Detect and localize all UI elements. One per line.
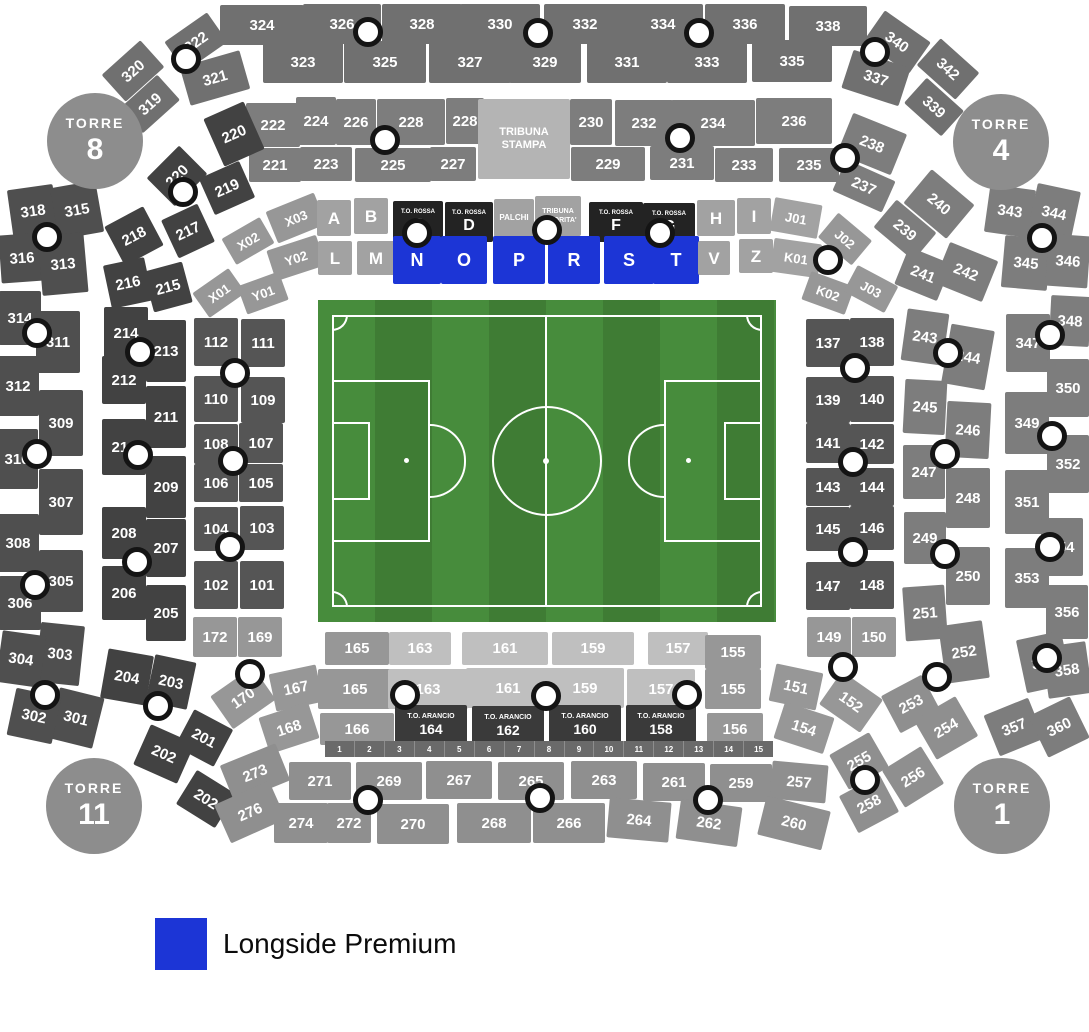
section-155[interactable]: 155 bbox=[705, 669, 761, 709]
section-163[interactable]: 163 bbox=[389, 632, 451, 665]
section-label: 112 bbox=[204, 335, 228, 350]
section-356[interactable]: 356 bbox=[1046, 585, 1088, 639]
section-label: 338 bbox=[815, 19, 840, 34]
section-label: 165 bbox=[342, 682, 367, 697]
section-label: I bbox=[752, 208, 757, 225]
section-329[interactable]: 329 bbox=[509, 41, 581, 83]
section-label: Y01 bbox=[250, 283, 276, 303]
section-257[interactable]: 257 bbox=[769, 761, 828, 804]
section-label: 331 bbox=[614, 55, 639, 70]
gate-marker bbox=[645, 218, 675, 248]
gate-marker bbox=[532, 215, 562, 245]
gate-marker bbox=[20, 570, 50, 600]
section-label: 159 bbox=[580, 641, 605, 656]
section-325[interactable]: 325 bbox=[344, 41, 426, 83]
section-label: R bbox=[568, 251, 581, 269]
section-225[interactable]: 225 bbox=[355, 148, 431, 182]
tower-number: 11 bbox=[78, 798, 110, 832]
row-number: 5 bbox=[444, 741, 474, 757]
section-224[interactable]: 224 bbox=[296, 97, 336, 145]
section-label: 103 bbox=[249, 521, 274, 536]
section-335[interactable]: 335 bbox=[752, 40, 832, 82]
section-label: 246 bbox=[955, 422, 981, 438]
gate-marker bbox=[693, 785, 723, 815]
section-s[interactable]: S bbox=[604, 236, 654, 284]
section-205[interactable]: 205 bbox=[146, 585, 186, 641]
section-label: 217 bbox=[173, 219, 202, 243]
section-label: 321 bbox=[201, 67, 229, 88]
section-260[interactable]: 260 bbox=[757, 796, 831, 851]
section-label: 155 bbox=[720, 682, 745, 697]
row-number: 8 bbox=[534, 741, 564, 757]
section-label: 144 bbox=[859, 480, 884, 495]
section-label: 220 bbox=[220, 122, 249, 146]
section-m[interactable]: M bbox=[357, 241, 395, 275]
section-150[interactable]: 150 bbox=[852, 617, 896, 657]
section-label: X02 bbox=[235, 230, 262, 253]
section-label: 208 bbox=[111, 526, 136, 541]
section-label: 109 bbox=[250, 393, 275, 408]
section-label: 216 bbox=[114, 273, 142, 293]
section-label: 320 bbox=[119, 57, 148, 85]
section-label: 227 bbox=[440, 157, 465, 172]
section-label: 327 bbox=[457, 55, 482, 70]
section-101[interactable]: 101 bbox=[240, 561, 284, 609]
gate-marker bbox=[32, 222, 62, 252]
section-label: 164 bbox=[419, 722, 442, 736]
section-label: 261 bbox=[661, 775, 686, 790]
section-157[interactable]: 157 bbox=[648, 632, 708, 665]
row-number: 10 bbox=[593, 741, 623, 757]
section-label: 313 bbox=[50, 255, 76, 272]
section-label: 161 bbox=[492, 641, 517, 656]
row-number: 7 bbox=[504, 741, 534, 757]
section-label: 307 bbox=[48, 495, 73, 510]
section-p[interactable]: P bbox=[493, 236, 545, 284]
row-number: 4 bbox=[414, 741, 444, 757]
pitch-goal-area-right bbox=[724, 422, 762, 500]
section-label: 312 bbox=[5, 379, 30, 394]
section-336[interactable]: 336 bbox=[705, 4, 785, 44]
section-label: 360 bbox=[1044, 715, 1073, 739]
section-label: 215 bbox=[154, 277, 182, 298]
section-label: 151 bbox=[782, 677, 810, 697]
section-label: 266 bbox=[556, 816, 581, 831]
tower-11: TORRE11 bbox=[46, 758, 142, 854]
section-248[interactable]: 248 bbox=[946, 468, 990, 528]
section-230[interactable]: 230 bbox=[570, 99, 612, 145]
section-label: 260 bbox=[780, 813, 808, 834]
section-label: 254 bbox=[931, 715, 960, 741]
section-label: 239 bbox=[891, 216, 920, 244]
section-label: STAMPA bbox=[502, 140, 547, 151]
section-label: O bbox=[457, 251, 471, 269]
section-263[interactable]: 263 bbox=[571, 761, 637, 799]
section-label: 149 bbox=[816, 630, 841, 645]
section-x01[interactable]: X01 bbox=[192, 268, 245, 318]
section-label: 167 bbox=[282, 678, 310, 698]
row-number: 3 bbox=[384, 741, 414, 757]
tower-8: TORRE8 bbox=[47, 93, 143, 189]
section-h[interactable]: H bbox=[697, 200, 735, 236]
section-label: D bbox=[463, 218, 475, 234]
section-label: 145 bbox=[815, 522, 840, 537]
section-308[interactable]: 308 bbox=[0, 514, 39, 572]
section-label: 159 bbox=[572, 681, 597, 696]
row-number: 9 bbox=[564, 741, 594, 757]
section-161[interactable]: 161 bbox=[462, 632, 548, 665]
section-a[interactable]: A bbox=[317, 200, 351, 236]
section-162[interactable]: T.O. ARANCIO162 bbox=[472, 706, 544, 744]
section-331[interactable]: 331 bbox=[587, 41, 667, 83]
section-b[interactable]: B bbox=[354, 198, 388, 234]
section-label: K02 bbox=[815, 283, 842, 303]
section-211[interactable]: 211 bbox=[146, 386, 186, 448]
gate-marker bbox=[860, 37, 890, 67]
section-360[interactable]: 360 bbox=[1028, 696, 1089, 758]
section-label: 161 bbox=[495, 681, 520, 696]
section-label: 106 bbox=[203, 476, 228, 491]
section-165[interactable]: 165 bbox=[318, 669, 392, 709]
section-label: 141 bbox=[815, 436, 840, 451]
row-number: 6 bbox=[474, 741, 504, 757]
section-label: 203 bbox=[157, 672, 185, 692]
section-154[interactable]: 154 bbox=[773, 702, 834, 754]
section-label: J03 bbox=[858, 278, 883, 300]
section-label: 157 bbox=[648, 682, 673, 697]
section-sub-label: T.O. ROSSA bbox=[401, 209, 435, 215]
gate-marker bbox=[30, 680, 60, 710]
pitch-penalty-spot-left bbox=[404, 458, 409, 463]
section-sub-label: TRIBUNA bbox=[499, 127, 549, 138]
section-v[interactable]: V bbox=[698, 241, 730, 275]
tower-1: TORRE1 bbox=[954, 758, 1050, 854]
section-label: 325 bbox=[372, 55, 397, 70]
section-sub-label: T.O. ARANCIO bbox=[637, 713, 684, 720]
tower-label: TORRE bbox=[66, 115, 125, 131]
section-label: 169 bbox=[247, 630, 272, 645]
section-148[interactable]: 148 bbox=[850, 561, 894, 609]
section-z[interactable]: Z bbox=[739, 239, 773, 273]
gate-marker bbox=[22, 318, 52, 348]
section-327[interactable]: 327 bbox=[429, 41, 511, 83]
section-105[interactable]: 105 bbox=[239, 464, 283, 502]
tower-number: 8 bbox=[87, 133, 104, 167]
section-label: 160 bbox=[573, 722, 596, 736]
row-number: 14 bbox=[713, 741, 743, 757]
section-label: 357 bbox=[1000, 715, 1029, 738]
section-label: 166 bbox=[344, 722, 369, 737]
section-215[interactable]: 215 bbox=[143, 262, 193, 313]
section-y01[interactable]: Y01 bbox=[237, 271, 289, 314]
section-label: 252 bbox=[951, 643, 978, 661]
section-label: 102 bbox=[203, 578, 228, 593]
section-label: 162 bbox=[496, 723, 519, 737]
section-label: 202 bbox=[150, 742, 179, 766]
section-label: 235 bbox=[796, 158, 821, 173]
section-label: P bbox=[513, 251, 525, 269]
section-209[interactable]: 209 bbox=[146, 456, 186, 518]
section-label: 101 bbox=[249, 578, 274, 593]
section-label: 250 bbox=[955, 569, 980, 584]
section-label: 323 bbox=[290, 55, 315, 70]
section-label: 352 bbox=[1055, 457, 1080, 472]
section-label: 259 bbox=[728, 776, 753, 791]
section-label: 111 bbox=[251, 336, 274, 351]
section-sub-label: T.O. ARANCIO bbox=[407, 713, 454, 720]
gate-marker bbox=[838, 537, 868, 567]
section-172[interactable]: 172 bbox=[193, 617, 237, 657]
section-103[interactable]: 103 bbox=[240, 506, 284, 550]
section-label: 165 bbox=[344, 641, 369, 656]
section-155[interactable]: 155 bbox=[705, 635, 761, 669]
section-label: 304 bbox=[8, 650, 35, 668]
gate-marker bbox=[171, 44, 201, 74]
section-label: H bbox=[710, 210, 722, 227]
section-stampa[interactable]: TRIBUNASTAMPA bbox=[478, 99, 570, 179]
section-312[interactable]: 312 bbox=[0, 356, 39, 416]
gate-marker bbox=[672, 680, 702, 710]
section-label: 346 bbox=[1055, 253, 1081, 270]
section-label: 147 bbox=[815, 579, 840, 594]
gate-marker bbox=[828, 652, 858, 682]
section-label: 243 bbox=[912, 328, 939, 346]
section-268[interactable]: 268 bbox=[457, 803, 531, 843]
section-label: A bbox=[328, 210, 340, 227]
section-149[interactable]: 149 bbox=[807, 617, 851, 657]
section-label: 309 bbox=[48, 416, 73, 431]
section-304[interactable]: 304 bbox=[0, 630, 46, 688]
section-label: 221 bbox=[262, 158, 287, 173]
section-label: 256 bbox=[898, 764, 927, 790]
section-label: 337 bbox=[862, 67, 890, 89]
section-label: 315 bbox=[63, 200, 90, 219]
section-164[interactable]: T.O. ARANCIO164 bbox=[395, 705, 467, 743]
gate-marker bbox=[930, 539, 960, 569]
section-label: 137 bbox=[815, 336, 840, 351]
section-271[interactable]: 271 bbox=[289, 762, 351, 800]
section-label: 105 bbox=[248, 476, 273, 491]
section-o[interactable]: O bbox=[441, 236, 487, 284]
stadium-seat-map: 3223243263283303323343363383403203213233… bbox=[0, 0, 1089, 1032]
section-label: 258 bbox=[854, 792, 883, 817]
section-label: F bbox=[611, 218, 621, 234]
section-160[interactable]: T.O. ARANCIO160 bbox=[549, 705, 621, 743]
section-label: X01 bbox=[206, 281, 232, 305]
section-147[interactable]: 147 bbox=[806, 562, 850, 610]
section-label: 226 bbox=[343, 115, 368, 130]
section-139[interactable]: 139 bbox=[806, 377, 850, 423]
gate-marker bbox=[840, 353, 870, 383]
section-label: 237 bbox=[850, 174, 879, 198]
tower-label: TORRE bbox=[972, 116, 1031, 132]
section-label: 232 bbox=[631, 116, 656, 131]
section-l[interactable]: L bbox=[318, 241, 352, 275]
pitch-center-spot bbox=[543, 458, 549, 464]
section-label: 213 bbox=[153, 344, 178, 359]
section-label: 343 bbox=[997, 202, 1024, 220]
section-label: 345 bbox=[1013, 254, 1039, 271]
section-label: 236 bbox=[781, 114, 806, 129]
section-264[interactable]: 264 bbox=[606, 797, 671, 842]
section-label: 154 bbox=[790, 717, 818, 739]
section-label: 211 bbox=[154, 410, 178, 425]
section-label: 148 bbox=[859, 578, 884, 593]
section-label: 224 bbox=[303, 114, 328, 129]
section-label: 316 bbox=[9, 250, 35, 267]
section-label: 268 bbox=[481, 816, 506, 831]
gate-marker bbox=[218, 446, 248, 476]
gate-marker bbox=[838, 447, 868, 477]
section-label: 238 bbox=[858, 132, 887, 155]
section-102[interactable]: 102 bbox=[194, 561, 238, 609]
gate-marker bbox=[235, 659, 265, 689]
section-label: 204 bbox=[113, 667, 140, 686]
section-sub-label: TRIBUNA bbox=[542, 208, 574, 215]
section-229[interactable]: 229 bbox=[571, 147, 645, 181]
section-label: 240 bbox=[925, 190, 954, 218]
section-111[interactable]: 111 bbox=[241, 319, 285, 367]
gate-marker bbox=[123, 440, 153, 470]
section-i[interactable]: I bbox=[737, 198, 771, 234]
section-label: 155 bbox=[720, 645, 745, 660]
section-324[interactable]: 324 bbox=[220, 5, 304, 45]
section-109[interactable]: 109 bbox=[241, 377, 285, 423]
section-227[interactable]: 227 bbox=[430, 147, 476, 181]
section-palchi[interactable]: PALCHI bbox=[494, 199, 534, 237]
section-label: 228 bbox=[452, 114, 477, 129]
section-169[interactable]: 169 bbox=[238, 617, 282, 657]
gate-marker bbox=[830, 143, 860, 173]
section-label: 242 bbox=[952, 260, 981, 283]
section-270[interactable]: 270 bbox=[377, 804, 449, 844]
section-label: 319 bbox=[136, 90, 165, 118]
section-label: 107 bbox=[248, 436, 273, 451]
section-158[interactable]: T.O. ARANCIO158 bbox=[626, 705, 696, 743]
section-label: 142 bbox=[859, 437, 884, 452]
section-159[interactable]: 159 bbox=[552, 632, 634, 665]
row-number: 11 bbox=[623, 741, 653, 757]
pitch-penalty-spot-right bbox=[686, 458, 691, 463]
section-label: 110 bbox=[204, 392, 228, 407]
section-332[interactable]: 332 bbox=[544, 4, 626, 44]
section-207[interactable]: 207 bbox=[146, 519, 186, 577]
gate-marker bbox=[930, 439, 960, 469]
section-label: 248 bbox=[955, 491, 980, 506]
section-label: 308 bbox=[5, 536, 30, 551]
section-label: K01 bbox=[783, 250, 808, 266]
section-label: S bbox=[623, 251, 635, 269]
row-number: 1 bbox=[325, 741, 354, 757]
section-sub-label: T.O. ARANCIO bbox=[484, 714, 531, 721]
section-328[interactable]: 328 bbox=[382, 4, 462, 44]
section-label: 257 bbox=[786, 773, 812, 790]
section-label: 353 bbox=[1014, 571, 1039, 586]
gate-marker bbox=[125, 337, 155, 367]
section-236[interactable]: 236 bbox=[756, 98, 832, 144]
gate-marker bbox=[525, 783, 555, 813]
section-sub-label: T.O. ROSSA bbox=[599, 210, 633, 216]
section-label: 342 bbox=[934, 55, 963, 83]
section-219[interactable]: 219 bbox=[199, 161, 255, 215]
section-218[interactable]: 218 bbox=[104, 206, 164, 266]
gate-marker bbox=[370, 125, 400, 155]
section-label: 267 bbox=[446, 773, 471, 788]
section-j01[interactable]: J01 bbox=[769, 197, 822, 239]
section-242[interactable]: 242 bbox=[934, 242, 999, 302]
gate-marker bbox=[143, 691, 173, 721]
section-label: 152 bbox=[836, 689, 865, 716]
section-label: 329 bbox=[532, 55, 557, 70]
section-267[interactable]: 267 bbox=[426, 761, 492, 799]
section-x02[interactable]: X02 bbox=[221, 217, 274, 265]
section-label: L bbox=[330, 250, 340, 267]
section-233[interactable]: 233 bbox=[715, 148, 773, 182]
row-number: 2 bbox=[354, 741, 384, 757]
section-151[interactable]: 151 bbox=[769, 663, 824, 710]
tower-4: TORRE4 bbox=[953, 94, 1049, 190]
section-245[interactable]: 245 bbox=[903, 379, 948, 435]
section-label: 158 bbox=[649, 722, 672, 736]
gate-marker bbox=[933, 338, 963, 368]
section-label: 245 bbox=[912, 399, 938, 415]
section-350[interactable]: 350 bbox=[1047, 359, 1089, 417]
section-sub-label: T.O. ARANCIO bbox=[561, 713, 608, 720]
section-label: 209 bbox=[153, 480, 178, 495]
section-label: 230 bbox=[578, 115, 603, 130]
section-221[interactable]: 221 bbox=[249, 148, 301, 182]
legend-label: Longside Premium bbox=[223, 928, 456, 960]
section-label: X03 bbox=[283, 208, 309, 229]
gate-marker bbox=[215, 532, 245, 562]
section-323[interactable]: 323 bbox=[263, 41, 343, 83]
section-label: 262 bbox=[696, 814, 723, 832]
gate-marker bbox=[531, 681, 561, 711]
gate-marker bbox=[922, 662, 952, 692]
section-label: 253 bbox=[896, 692, 925, 717]
gate-marker bbox=[684, 18, 714, 48]
section-label: 228 bbox=[398, 115, 423, 130]
section-label: 168 bbox=[275, 717, 303, 739]
section-label: 349 bbox=[1014, 416, 1039, 431]
section-r[interactable]: R bbox=[548, 236, 600, 284]
section-label: 269 bbox=[376, 774, 401, 789]
section-274[interactable]: 274 bbox=[274, 803, 328, 843]
section-label: 146 bbox=[859, 521, 884, 536]
gate-marker bbox=[122, 547, 152, 577]
tower-number: 1 bbox=[994, 798, 1011, 832]
section-217[interactable]: 217 bbox=[161, 204, 215, 259]
section-j03[interactable]: J03 bbox=[844, 265, 899, 313]
section-label: 225 bbox=[380, 158, 405, 173]
section-label: 223 bbox=[313, 157, 338, 172]
row-number: 13 bbox=[683, 741, 713, 757]
section-label: N bbox=[411, 251, 424, 269]
section-333[interactable]: 333 bbox=[667, 41, 747, 83]
section-307[interactable]: 307 bbox=[39, 469, 83, 535]
section-165[interactable]: 165 bbox=[325, 632, 389, 665]
gate-marker bbox=[353, 785, 383, 815]
section-label: 344 bbox=[1040, 203, 1068, 223]
section-label: 301 bbox=[62, 708, 90, 729]
pitch-goal-area-left bbox=[332, 422, 370, 500]
section-label: 156 bbox=[722, 722, 747, 737]
tower-number: 4 bbox=[993, 134, 1010, 168]
gate-marker bbox=[353, 17, 383, 47]
section-223[interactable]: 223 bbox=[300, 147, 352, 181]
section-label: 350 bbox=[1055, 381, 1080, 396]
section-label: B bbox=[365, 208, 377, 225]
